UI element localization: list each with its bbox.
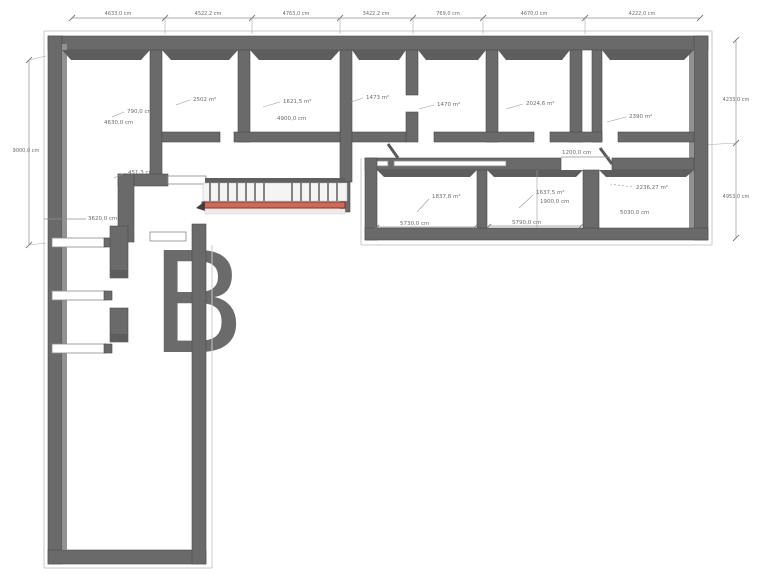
- outer-wall-bottom-wing: [48, 550, 206, 564]
- room5-area-label: 1470 m²: [437, 101, 460, 108]
- floor-plan-canvas: B 4633,0 cm 4522,2 cm 4763,0 cm 3422,2 c…: [0, 0, 770, 578]
- hall-opening-label: 451,3 cm: [128, 170, 154, 176]
- lower-block-top-wall-right: [612, 158, 694, 170]
- partition-bc: [583, 170, 599, 228]
- roomC-area-label: 2236,27 m²: [636, 184, 668, 191]
- roomA-width-label: 5730,0 cm: [400, 221, 429, 227]
- walls: [48, 36, 708, 564]
- door-leaf: [600, 148, 612, 164]
- partition-a: [150, 50, 162, 184]
- roomB-area-label: 1637,5 m²: [536, 189, 565, 196]
- wing-slab-3: [52, 344, 106, 353]
- top-dim-4: 3422,2 cm: [363, 11, 390, 17]
- right-dim-upper: 4233,0 cm: [723, 97, 750, 103]
- left-dim-total: 9000,0 cm: [13, 148, 40, 154]
- staircase: [196, 178, 347, 214]
- wing-shelf-topright: [150, 232, 186, 241]
- roomB-width-label: 5790,0 cm: [512, 220, 541, 226]
- top-dim-5: 769,0 cm: [436, 11, 460, 17]
- roomB-inner-label: 1900,0 cm: [540, 199, 569, 205]
- partition-g: [592, 50, 602, 142]
- stair-stringer-red: [202, 202, 345, 208]
- right-dim-lower: 4953,0 cm: [723, 194, 750, 200]
- roomA-area-label: 1837,8 m²: [432, 193, 461, 200]
- top-dim-6: 4670,0 cm: [521, 11, 548, 17]
- partition-f: [570, 50, 582, 142]
- left-dimension: 9000,0 cm: [13, 56, 46, 248]
- room1-width-label: 790,0 cm: [127, 109, 153, 115]
- partition-e: [486, 50, 498, 142]
- room7-area-label: 2390 m²: [629, 113, 652, 120]
- top-dim-7: 4222,0 cm: [629, 11, 656, 17]
- room3-depth-label: 4900,0 cm: [277, 116, 306, 122]
- hall-door-slab: [168, 176, 206, 184]
- wing-slab-1: [52, 238, 106, 247]
- partition-b: [238, 50, 250, 142]
- door-leaf: [388, 144, 398, 158]
- lower-block-bottom-wall: [365, 228, 708, 240]
- floor-plan-drawing: B 4633,0 cm 4522,2 cm 4763,0 cm 3422,2 c…: [0, 0, 770, 578]
- top-dim-3: 4763,0 cm: [283, 11, 310, 17]
- top-dim-2: 4522,2 cm: [195, 11, 222, 17]
- outer-wall-top: [48, 36, 708, 50]
- roomC-width-label: 5030,0 cm: [620, 210, 649, 216]
- partition-d-lower: [406, 112, 418, 142]
- top-dim-1: 4633,0 cm: [105, 11, 132, 17]
- partition-ab: [477, 170, 487, 228]
- room2-area-label: 2502 m²: [193, 96, 216, 103]
- right-dimension: 4233,0 cm 4953,0 cm: [702, 37, 749, 241]
- wing-inner-wall: [192, 224, 206, 564]
- partition-d-upper: [406, 50, 418, 95]
- room6-area-label: 2024,6 m²: [526, 100, 555, 107]
- wing-slab-2: [52, 291, 106, 300]
- lower-block-left-wall: [365, 158, 377, 240]
- room3-area-label: 1621,5 m²: [283, 98, 312, 105]
- outer-wall-right: [694, 36, 708, 240]
- corridor-opening-label: 1200,0 cm: [562, 150, 591, 156]
- partition-c: [340, 50, 352, 182]
- room4-area-label: 1473 m²: [366, 94, 389, 101]
- wing-width-label: 3620,0 cm: [88, 216, 117, 222]
- room1-depth-label: 4630,0 cm: [104, 120, 133, 126]
